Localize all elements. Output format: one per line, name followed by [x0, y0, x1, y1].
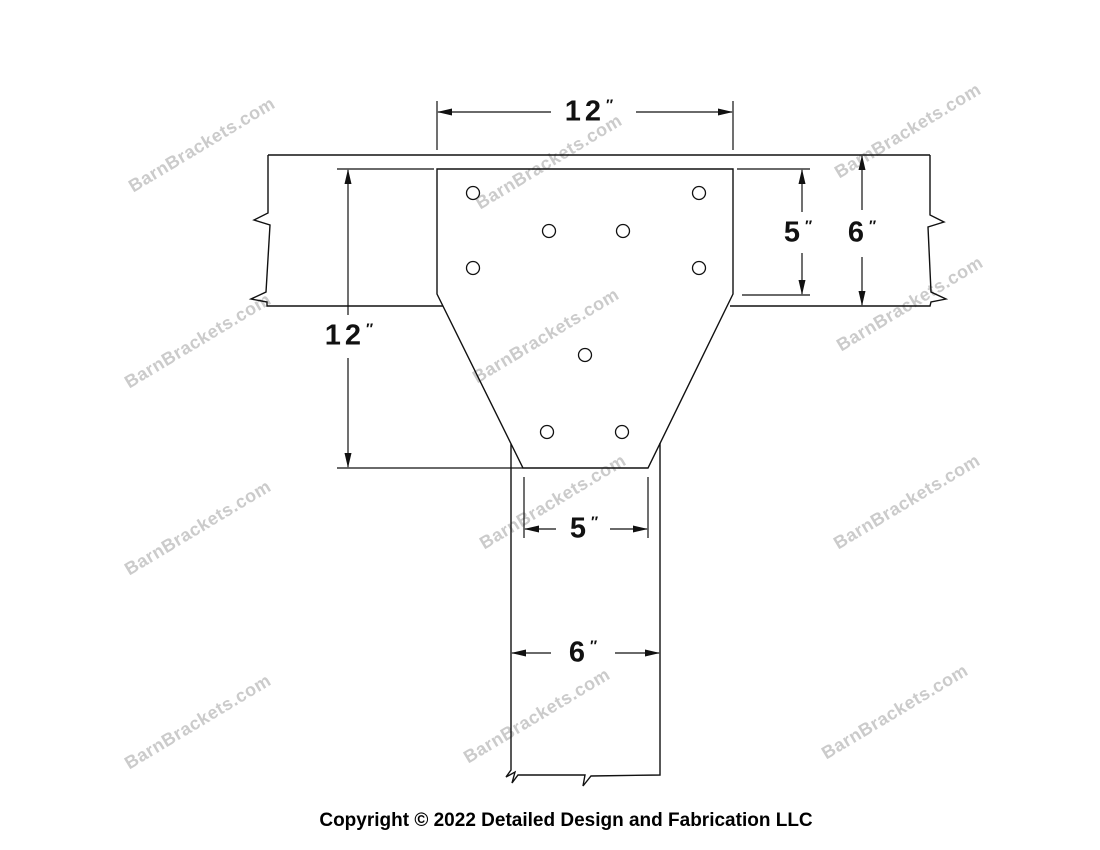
dimension-value: 12 [565, 96, 605, 128]
dimension-label-bottom-post-width: 6″ [569, 639, 597, 668]
dimension-value: 5 [570, 513, 590, 545]
dimension-value: 6 [569, 637, 589, 669]
dimension-unit: ″ [590, 638, 597, 655]
dimension-label-bottom-plate-width: 5″ [570, 515, 598, 544]
dimension-unit: ″ [366, 321, 373, 338]
dimension-label-right-beam-height: 6″ [848, 219, 876, 248]
bracket-drawing-page: BarnBrackets.comBarnBrackets.comBarnBrac… [0, 0, 1100, 850]
dimension-label-right-plate-top: 5″ [784, 219, 812, 248]
dimension-value: 12 [325, 320, 365, 352]
dimension-label-top-width: 12″ [565, 98, 613, 127]
dimension-unit: ″ [606, 97, 613, 114]
dimension-value: 5 [784, 217, 804, 249]
dimension-unit: ″ [869, 218, 876, 235]
copyright-text: Copyright © 2022 Detailed Design and Fab… [319, 810, 812, 832]
dimension-labels: 12″ 12″ 5″ 6″ 5″ 6″ [0, 0, 1100, 850]
dimension-label-left-height: 12″ [325, 322, 373, 351]
dimension-unit: ″ [805, 218, 812, 235]
dimension-unit: ″ [591, 514, 598, 531]
dimension-value: 6 [848, 217, 868, 249]
